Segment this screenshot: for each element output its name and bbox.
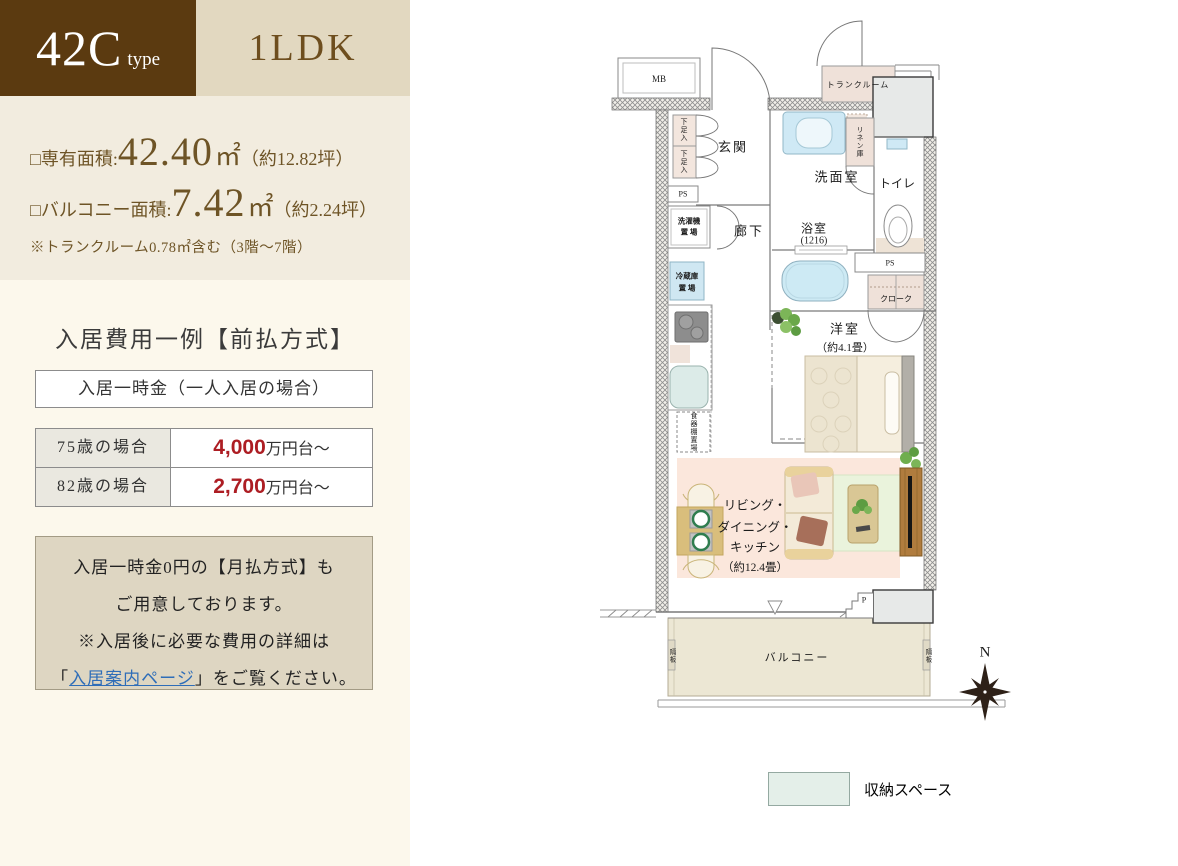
sofa xyxy=(785,467,833,559)
label-bedroom-size: （約4.1畳） xyxy=(816,339,874,355)
label-dish-cabinet: 食器棚置場 xyxy=(689,412,699,452)
unit-type-code: 42C xyxy=(36,20,122,76)
room-label-trunk: トランクルーム xyxy=(827,80,890,91)
storage-legend: 収納スペース xyxy=(768,772,952,806)
label-cloak: クローク xyxy=(880,294,912,305)
note-line-3: ※入居後に必要な費用の詳細は xyxy=(36,623,372,660)
room-label-balcony: バルコニー xyxy=(765,649,830,665)
entrance-door-arc xyxy=(712,48,770,110)
label-separator-left: 隔板 xyxy=(666,649,676,664)
area-specs: □専有面積: 42.40 ㎡ （約12.82坪） □バルコニー面積: 7.42 … xyxy=(0,96,410,280)
exclusive-area-value: 42.40 xyxy=(118,128,213,175)
room-label-toilet: トイレ xyxy=(879,175,915,192)
exclusive-area-line: □専有面積: 42.40 ㎡ （約12.82坪） xyxy=(30,128,410,175)
exclusive-area-unit: ㎡ xyxy=(215,136,241,173)
label-separator-right: 隔板 xyxy=(922,649,932,664)
label-washer-1: 洗濯機 xyxy=(678,216,701,227)
plant-bedroom xyxy=(772,308,801,336)
room-label-ldk-3: キッチン xyxy=(730,537,780,556)
coffee-table xyxy=(848,485,878,543)
room-label-ldk-1: リビング・ xyxy=(724,495,787,514)
pricing-table: 75歳の場合 4,000万円台〜 82歳の場合 2,700万円台〜 xyxy=(35,428,373,507)
floor-plan-drawing xyxy=(600,0,1030,730)
label-bath-size: (1216) xyxy=(801,236,828,247)
label-shoe-box-2: 下足入 xyxy=(679,150,689,174)
label-fridge-1: 冷蔵庫 xyxy=(676,271,699,282)
label-ldk-size: （約12.4畳） xyxy=(722,559,788,575)
compass-north-label: N xyxy=(980,645,991,662)
balcony-area-label: □バルコニー面積: xyxy=(30,196,172,222)
note-open: 「 xyxy=(51,669,69,688)
room-label-mb: MB xyxy=(652,74,666,84)
label-pipe-space: P xyxy=(862,596,866,605)
pricing-title: 入居費用一例【前払方式】 xyxy=(0,320,410,354)
window-marks xyxy=(608,601,870,617)
pricing-section: 入居費用一例【前払方式】 入居一時金（一人入居の場合） 75歳の場合 4,000… xyxy=(0,280,410,866)
tv-board xyxy=(900,468,922,556)
room-label-hallway: 廊下 xyxy=(734,221,764,240)
room-label-ldk-2: ダイニング・ xyxy=(717,517,792,536)
exclusive-area-label: □専有面積: xyxy=(30,145,118,171)
note-line-1: 入居一時金0円の【月払方式】も xyxy=(36,549,372,586)
label-washer-2: 置 場 xyxy=(681,227,698,238)
age-label: 82歳の場合 xyxy=(36,468,171,506)
cloak-closet xyxy=(868,275,924,342)
room-label-bedroom: 洋室 xyxy=(830,319,860,338)
price-suffix: 万円台〜 xyxy=(266,441,330,458)
bath-door xyxy=(795,246,847,254)
bathtub xyxy=(782,261,848,301)
room-label-bath: 浴室 xyxy=(801,220,827,237)
note-line-4: 「入居案内ページ」をご覧ください。 xyxy=(36,660,372,697)
table-row: 75歳の場合 4,000万円台〜 xyxy=(36,429,372,467)
balcony-area-tsubo: （約2.24坪） xyxy=(274,196,378,222)
lump-sum-box: 入居一時金（一人入居の場合） xyxy=(35,370,373,408)
label-linen: リネン庫 xyxy=(855,126,865,158)
unit-type-suffix: type xyxy=(127,49,160,70)
room-label-washroom: 洗面室 xyxy=(814,167,859,186)
age-label: 75歳の場合 xyxy=(36,429,171,467)
balcony-area-value: 7.42 xyxy=(172,179,246,226)
label-ps-1: PS xyxy=(679,190,688,199)
pipe-space-steps xyxy=(846,593,873,618)
unit-layout: 1LDK xyxy=(248,27,357,69)
price-suffix: 万円台〜 xyxy=(266,480,330,497)
legend-color-swatch xyxy=(768,772,850,806)
guide-page-link[interactable]: 入居案内ページ xyxy=(69,669,195,688)
trunk-room-note: ※トランクルーム0.78㎡含む（3階〜7階） xyxy=(30,236,410,257)
monthly-plan-note: 入居一時金0円の【月払方式】も ご用意しております。 ※入居後に必要な費用の詳細… xyxy=(35,536,373,690)
unit-layout-badge: 1LDK xyxy=(196,0,410,96)
price-number: 2,700 xyxy=(213,475,266,498)
table-row: 82歳の場合 2,700万円台〜 xyxy=(36,467,372,506)
price-value-cell: 4,000万円台〜 xyxy=(171,429,372,467)
balcony-area-unit: ㎡ xyxy=(248,187,274,224)
room-label-genkan: 玄関 xyxy=(718,137,748,156)
legend-label: 収納スペース xyxy=(864,779,952,800)
compass-icon xyxy=(959,663,1011,721)
label-fridge-2: 置 場 xyxy=(679,283,696,294)
note-close: 」をご覧ください。 xyxy=(195,669,357,688)
price-number: 4,000 xyxy=(213,436,266,459)
label-shoe-box-1: 下足入 xyxy=(679,118,689,142)
price-value-cell: 2,700万円台〜 xyxy=(171,468,372,506)
bed xyxy=(805,356,914,452)
unit-type-badge: 42Ctype xyxy=(0,0,196,96)
exclusive-area-tsubo: （約12.82坪） xyxy=(241,145,354,171)
balcony-area-line: □バルコニー面積: 7.42 ㎡ （約2.24坪） xyxy=(30,179,410,226)
label-ps-2: PS xyxy=(886,259,895,268)
floorplan-page: 42Ctype 1LDK □専有面積: 42.40 ㎡ （約12.82坪） □バ… xyxy=(0,0,1178,866)
note-line-2: ご用意しております。 xyxy=(36,586,372,623)
balcony-area xyxy=(658,618,1005,707)
